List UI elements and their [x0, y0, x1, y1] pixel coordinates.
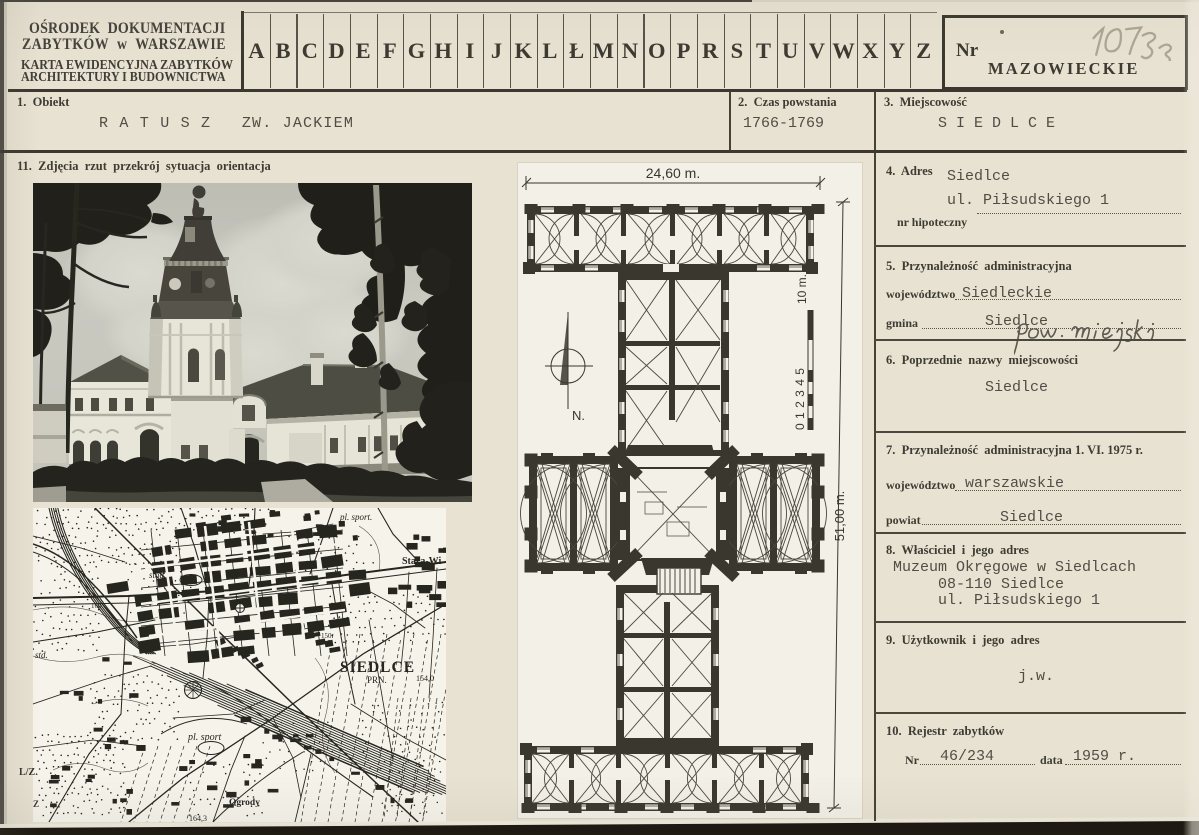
svg-text:150: 150 [321, 632, 332, 640]
svg-text:Stara-Wi: Stara-Wi [402, 556, 441, 567]
svg-text:164,3: 164,3 [189, 814, 207, 822]
svg-text:pl. sport.: pl. sport. [339, 512, 372, 522]
svg-text:51,00 m.: 51,00 m. [832, 491, 847, 542]
svg-text:N.: N. [572, 408, 585, 423]
svg-text:24,60 m.: 24,60 m. [646, 165, 700, 181]
svg-text:10 m.: 10 m. [795, 274, 809, 304]
svg-text:160: 160 [91, 602, 102, 610]
svg-text:SIEDLCE: SIEDLCE [340, 659, 415, 676]
svg-text:Ogrody: Ogrody [229, 798, 260, 808]
svg-text:std.: std. [35, 650, 48, 660]
svg-text:pl. sport: pl. sport [187, 732, 222, 743]
svg-text:PRN.: PRN. [367, 675, 387, 685]
svg-text:0 1 2 3 4 5: 0 1 2 3 4 5 [793, 368, 807, 430]
svg-text:154,0: 154,0 [416, 674, 434, 683]
svg-text:stad.: stad. [149, 570, 166, 580]
